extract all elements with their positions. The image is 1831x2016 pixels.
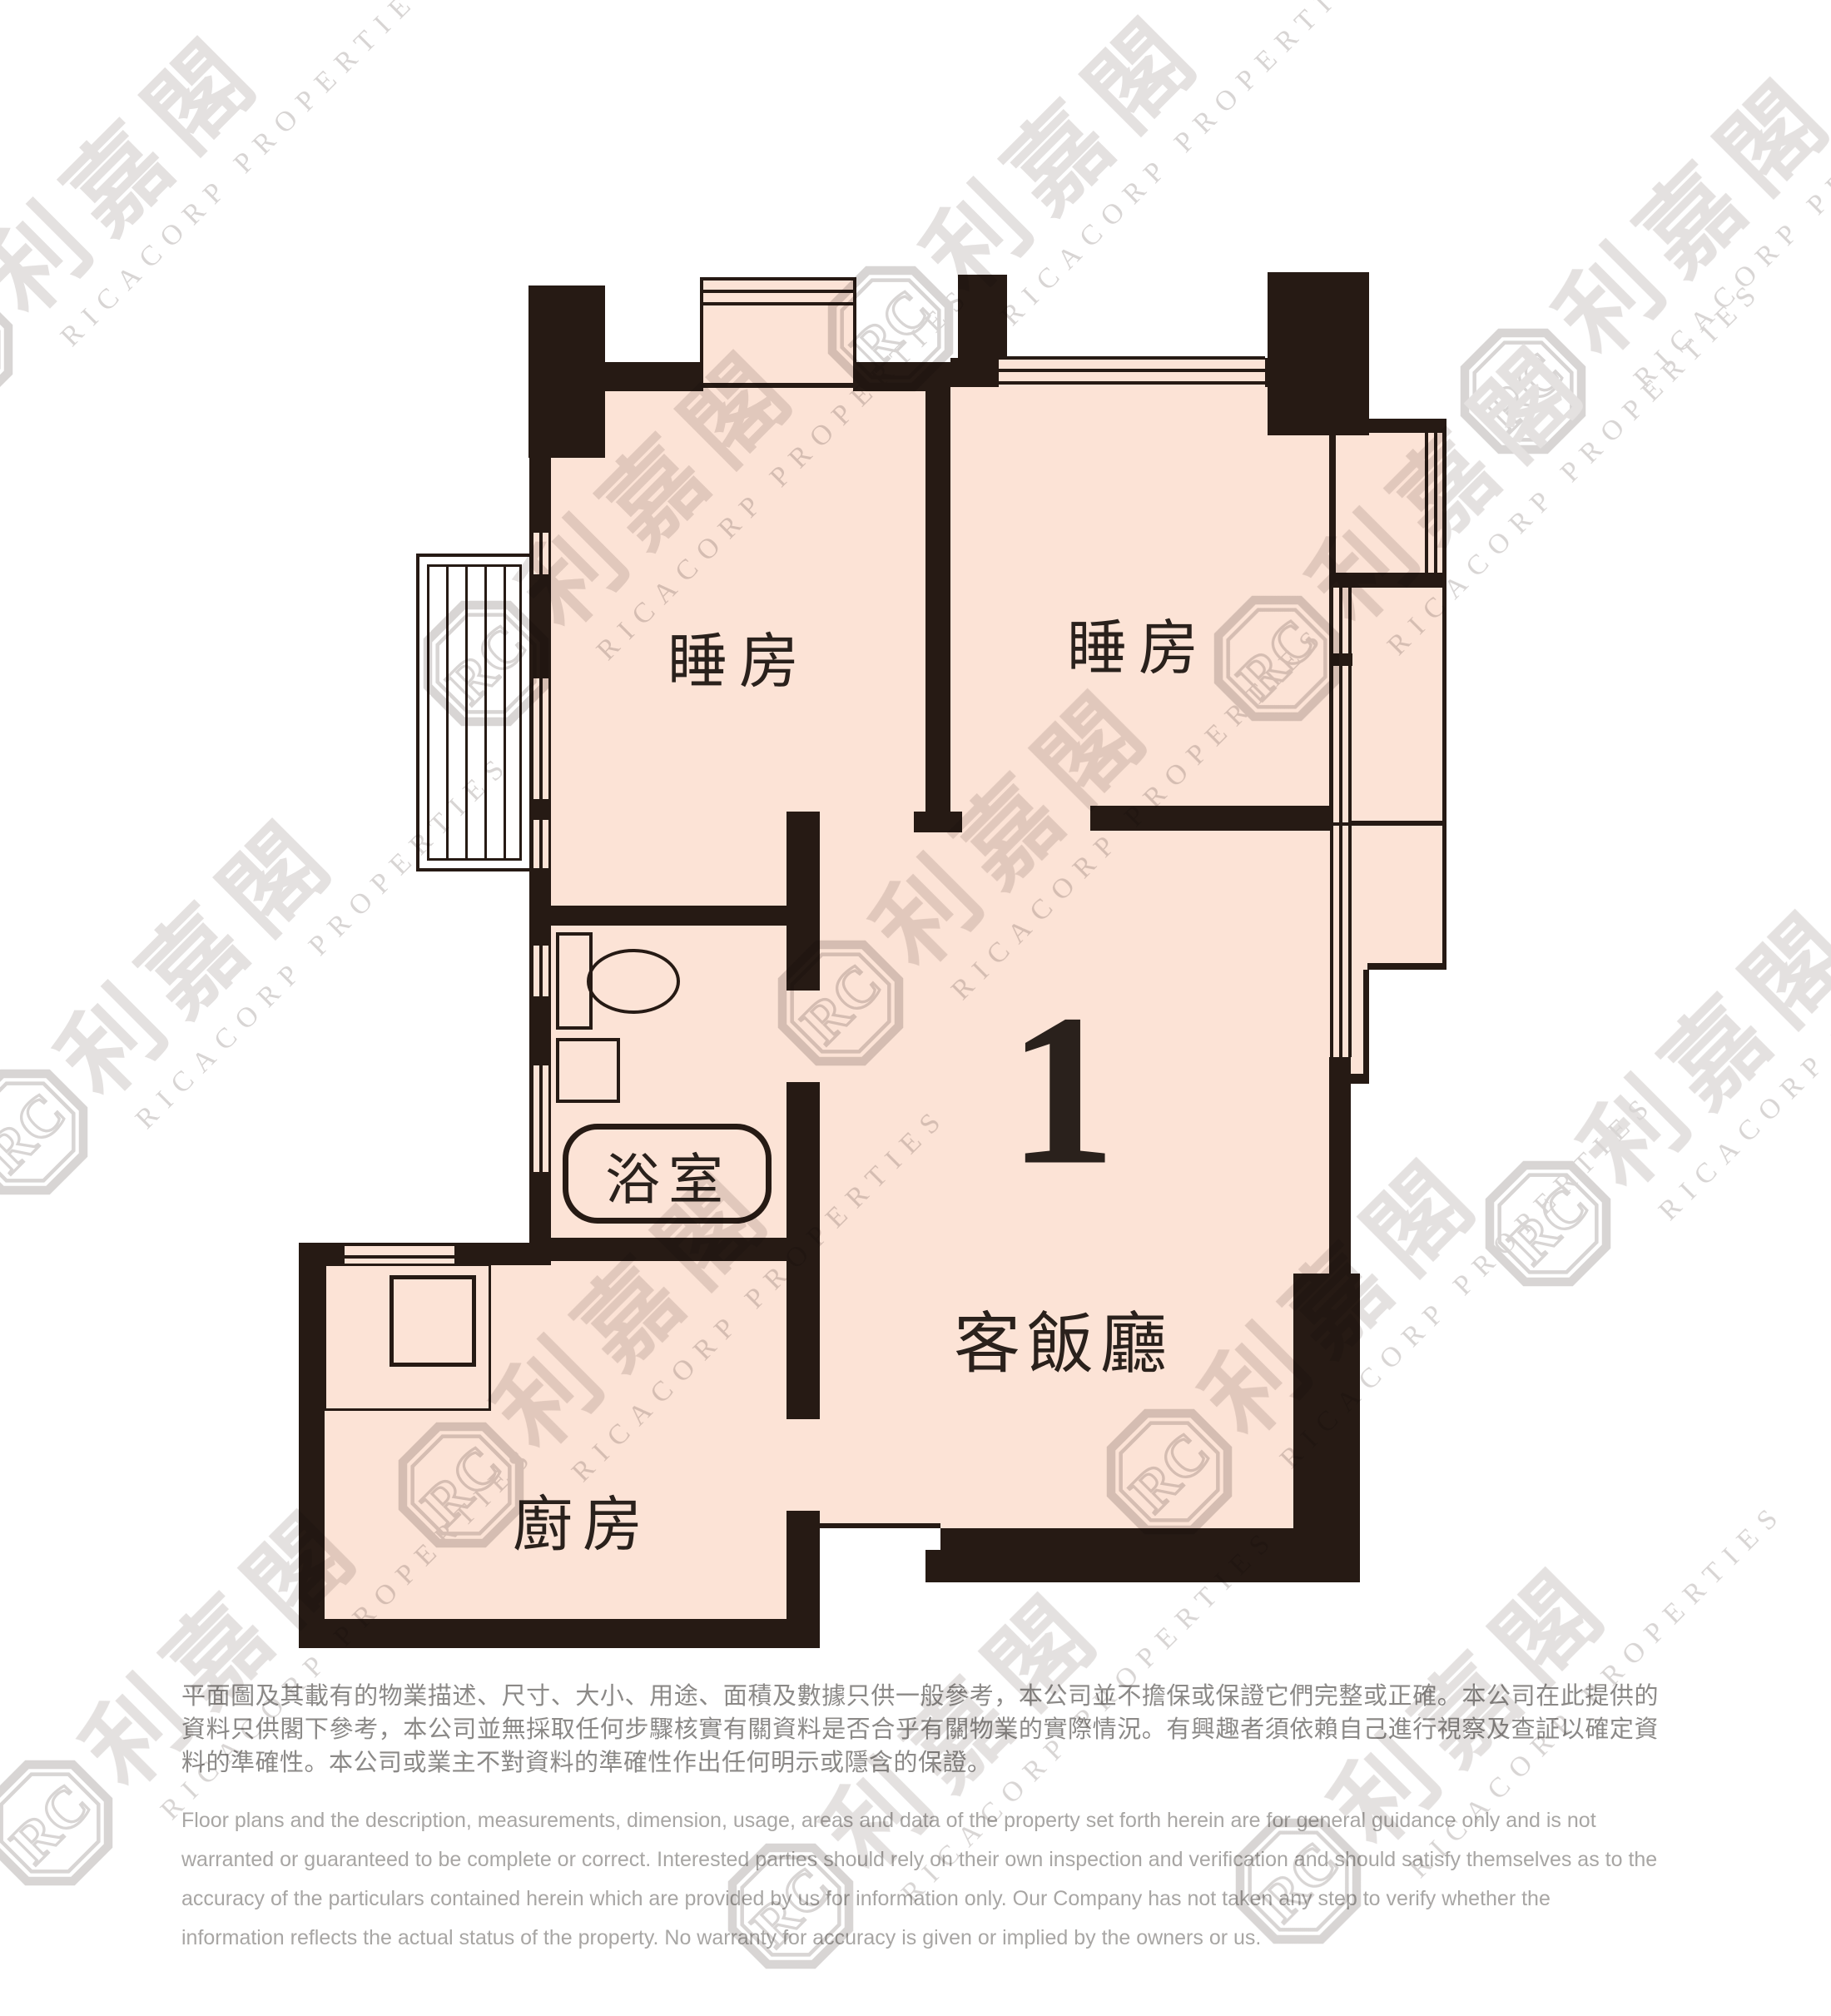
wall-segment xyxy=(950,358,999,387)
kitchen-label: 廚房 xyxy=(513,1476,653,1563)
bedroom1-label: 睡房 xyxy=(667,613,811,700)
wall-segment xyxy=(528,362,703,391)
wall-segment xyxy=(1367,963,1446,970)
wall-segment xyxy=(914,812,962,832)
balcony-louvre-slats xyxy=(427,564,522,861)
floor-plan: 睡房 睡房 浴室 客飯廳 廚房 1 xyxy=(0,0,1831,1831)
disclaimer-chinese: 平面圖及其載有的物業描述、尺寸、大小、用途、面積及數據只供一般參考，本公司並不擔… xyxy=(181,1680,1659,1780)
kitchen-window xyxy=(345,1243,454,1264)
wall-segment xyxy=(820,1523,940,1528)
balcony-louvre xyxy=(416,554,533,871)
wall-bathroom-top xyxy=(529,906,820,926)
wall-segment xyxy=(703,383,853,388)
floor-plan-page: { "colors": { "wall": "#261a14", "floor"… xyxy=(0,0,1831,1831)
wall-bathroom-bottom xyxy=(529,1238,820,1261)
wall-kitchen-bottom xyxy=(299,1619,820,1648)
wall-segment xyxy=(1329,653,1352,666)
toilet-bowl xyxy=(587,949,680,1014)
left-wall-window-2 xyxy=(530,678,551,799)
wall-segment xyxy=(786,1082,820,1261)
bedroom2-top-window xyxy=(999,356,1265,385)
wall-living-bottom xyxy=(940,1528,1360,1582)
wall-bedroom-separator xyxy=(925,387,950,812)
bathroom-window-1 xyxy=(530,946,551,996)
wall-segment xyxy=(1329,1057,1351,1282)
bedroom1-bay-window-glass xyxy=(703,277,853,308)
left-wall-window-1 xyxy=(530,533,551,574)
kitchen-sink xyxy=(390,1275,476,1367)
wall-column-top-right xyxy=(1268,272,1369,435)
wall-segment xyxy=(1351,1074,1369,1084)
living-dining-label: 客飯廳 xyxy=(954,1290,1174,1387)
bathroom-window-2 xyxy=(530,1065,551,1172)
wall-segment xyxy=(786,1261,820,1419)
bay-middle-window-glass xyxy=(1330,588,1352,822)
bathroom-label: 浴室 xyxy=(605,1135,732,1215)
bedroom2-label: 睡房 xyxy=(1067,599,1210,687)
wall-segment xyxy=(1342,419,1446,433)
wall-segment xyxy=(925,1550,940,1582)
wall-segment xyxy=(786,812,820,991)
left-wall-window-3 xyxy=(530,820,551,868)
wall-segment xyxy=(1442,433,1446,963)
wall-kitchen-left xyxy=(299,1243,325,1648)
wall-segment xyxy=(1330,573,1446,588)
bathroom-sink xyxy=(556,1038,620,1103)
wall-segment xyxy=(1363,970,1369,1080)
disclaimer: 平面圖及其載有的物業描述、尺寸、大小、用途、面積及數據只供一般參考，本公司並不擔… xyxy=(181,1680,1659,1958)
wall-bedroom2-bottom xyxy=(1090,806,1351,831)
bay-sliver-window-glass xyxy=(1330,826,1352,1057)
wall-segment xyxy=(786,1511,820,1623)
disclaimer-english: Floor plans and the description, measure… xyxy=(181,1801,1659,1958)
unit-number: 1 xyxy=(1008,966,1116,1215)
wall-segment xyxy=(1351,821,1446,826)
